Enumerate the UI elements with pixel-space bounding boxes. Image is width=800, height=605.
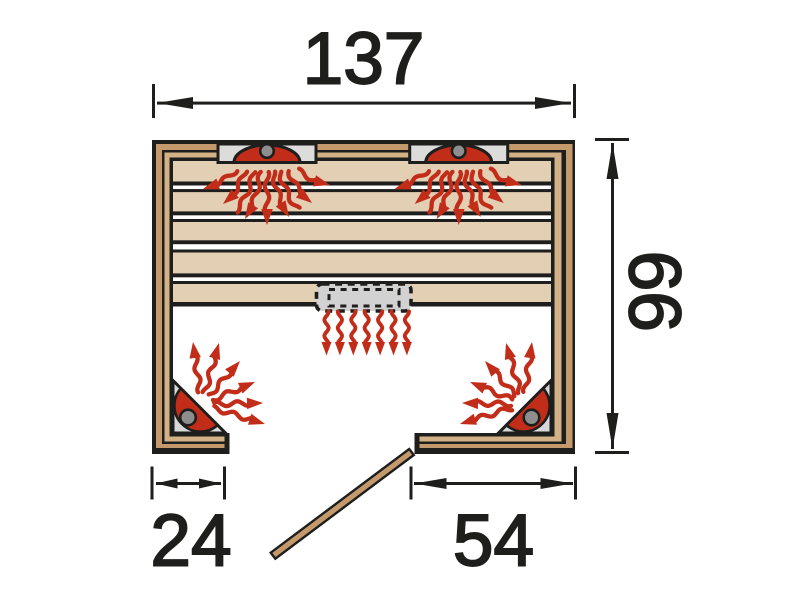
svg-text:54: 54 xyxy=(453,501,534,582)
svg-text:24: 24 xyxy=(150,501,231,582)
svg-text:99: 99 xyxy=(616,251,697,332)
svg-text:137: 137 xyxy=(303,19,425,100)
